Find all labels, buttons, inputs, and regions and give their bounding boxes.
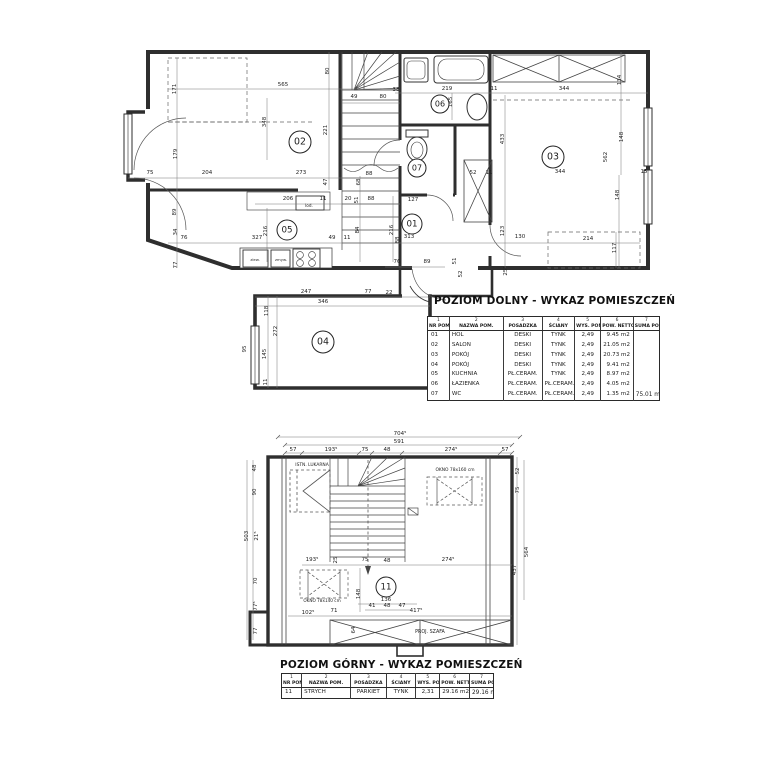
dim-label: 148 <box>615 189 621 200</box>
dim-label: 52 <box>458 271 464 278</box>
dim-label: OKNO 78x140 cm <box>303 598 340 603</box>
dim-label: 77 <box>253 627 259 634</box>
dim-label: 48 <box>384 558 391 564</box>
column-header: 4ŚCIANY <box>386 674 416 688</box>
table-cell: 2,49 <box>575 341 601 351</box>
upper-level-room-table: 1NR POM.2NAZWA POM.3POSADZKA4ŚCIANY5WYS.… <box>281 673 494 699</box>
column-header: 3POSADZKA <box>503 317 542 331</box>
room-number-label: 05 <box>281 226 292 236</box>
dim-label: 214 <box>583 236 594 242</box>
dim-label: OKNO 78x160 cm <box>435 467 474 473</box>
dim-label: 564 <box>524 546 530 557</box>
knee-walls <box>282 457 490 645</box>
table-cell: 06 <box>428 380 450 390</box>
dim-label: 219 <box>442 86 453 92</box>
column-header: 6POW. NETTO <box>601 317 634 331</box>
dim-label: 22 <box>386 290 393 296</box>
dim-label: 75 <box>147 170 154 176</box>
dim-label: 15 <box>641 169 648 175</box>
dim-label: 433 <box>500 133 506 144</box>
room-number-label: 06 <box>435 100 445 109</box>
dim-label: 134 <box>617 74 623 85</box>
table-cell: 11 <box>282 688 302 699</box>
dim-label: 48 <box>384 603 391 609</box>
table-cell: 2,49 <box>575 361 601 371</box>
table-cell: 04 <box>428 361 450 371</box>
dim-label: 273 <box>296 170 307 176</box>
dim-label: 47 <box>323 178 329 185</box>
dim-label: 11 <box>320 196 327 202</box>
table-cell: PŁ.CERAM. <box>503 380 542 390</box>
dim-label: 90 <box>252 488 258 495</box>
dim-label: 89 <box>172 208 178 215</box>
room-number-label: 02 <box>294 137 306 148</box>
dim-label: 145 <box>262 348 268 359</box>
dim-label: 118 <box>264 305 270 316</box>
dim-label: 89 <box>424 259 431 265</box>
staircase-lower <box>342 52 400 250</box>
dim-label: 247 <box>301 289 312 295</box>
dim-label: 25 <box>333 556 339 563</box>
dim-label: 130 <box>515 234 526 240</box>
dim-label: 327 <box>252 235 263 241</box>
table-cell: 9.45 m2 <box>601 331 634 341</box>
lower-plan-inner-walls <box>148 52 490 268</box>
dim-label: 47 <box>399 603 406 609</box>
dim-label: 193⁵ <box>306 556 319 563</box>
lower-plan-title: POZIOM DOLNY - WYKAZ POMIESZCZEŃ <box>434 295 675 307</box>
table-cell: DESKI <box>503 331 542 341</box>
dim-label: 71 <box>331 608 338 614</box>
dim-label: 591 <box>394 439 405 445</box>
column-header: 7SUMA POW. <box>469 674 493 688</box>
dim-label: 565 <box>278 82 289 88</box>
dim-label: 77 <box>173 261 179 268</box>
table-cell: 1.35 m2 <box>601 390 634 400</box>
dim-label: 344 <box>555 169 566 175</box>
dim-label: PROJ. SZAFA <box>415 629 445 635</box>
total-area-cell: 75.01 m2 <box>633 331 659 400</box>
column-header: 7SUMA POW. <box>633 317 659 331</box>
column-header: 5WYS. POM. <box>416 674 440 688</box>
table-cell: SALON <box>449 341 503 351</box>
table-cell: 21.05 m2 <box>601 341 634 351</box>
room-number-label: 07 <box>412 164 422 173</box>
dim-label: 193⁵ <box>325 446 338 453</box>
table-cell: KUCHNIA <box>449 370 503 380</box>
room-number-label: 01 <box>406 220 417 230</box>
upper-plan-title: POZIOM GÓRNY - WYKAZ POMIESZCZEŃ <box>280 659 494 671</box>
dim-label: 179 <box>173 148 179 159</box>
dim-label: 41 <box>369 603 376 609</box>
room-number-label: 04 <box>317 337 329 348</box>
room-schedule-table: 1NR POM.2NAZWA POM.3POSADZKA4ŚCIANY5WYS.… <box>427 316 660 401</box>
dim-label: 274⁵ <box>445 446 458 453</box>
dim-label: 70 <box>253 577 259 584</box>
dim-label: lod. <box>305 203 313 208</box>
dim-label: ISTN. LUKARNA <box>295 462 328 468</box>
dim-label: 57 <box>290 447 297 453</box>
table-cell: TYNK <box>386 688 416 699</box>
column-header: 5WYS. POM. <box>575 317 601 331</box>
dim-label: 148 <box>619 131 625 142</box>
staircase-upper <box>330 457 418 575</box>
column-header: 1NR POM. <box>282 674 302 688</box>
dim-label: 49 <box>351 94 358 100</box>
table-cell: 2,49 <box>575 380 601 390</box>
table-cell: 4.05 m2 <box>601 380 634 390</box>
dim-label: 344 <box>559 86 570 92</box>
dim-label: 562 <box>603 152 609 163</box>
dim-label: 48 <box>252 464 258 471</box>
table-cell: 2,49 <box>575 331 601 341</box>
dormer-outline <box>290 470 330 512</box>
column-header: 6POW. NETTO <box>440 674 470 688</box>
dim-label: 77 <box>365 289 372 295</box>
table-cell: DESKI <box>503 341 542 351</box>
table-row: 03POKÓJDESKITYNK2,4920.73 m2 <box>428 351 660 361</box>
dim-label: 88 <box>395 236 401 243</box>
table-cell: POKÓJ <box>449 351 503 361</box>
dim-label: 51 <box>354 197 360 204</box>
dim-label: 48 <box>384 447 391 453</box>
room-number-label: 11 <box>380 583 391 593</box>
table-cell: ŁAZIENKA <box>449 380 503 390</box>
table-cell: DESKI <box>503 361 542 371</box>
dim-label: 51 <box>452 258 458 265</box>
table-cell: 2,49 <box>575 370 601 380</box>
dim-label: 77⁵ <box>252 601 259 610</box>
scanned-floor-plan-page: 1715653488049802211793821911344134165433… <box>0 0 768 768</box>
dim-label: 503 <box>244 530 250 541</box>
dim-label: 123 <box>500 225 506 236</box>
table-cell: 05 <box>428 370 450 380</box>
table-row: 06ŁAZIENKAPŁ.CERAM.PŁ.CERAM.2,494.05 m2 <box>428 380 660 390</box>
room-schedule-table: 1NR POM.2NAZWA POM.3POSADZKA4ŚCIANY5WYS.… <box>281 673 494 699</box>
dim-label: 84 <box>355 226 361 233</box>
dim-label: zmyw. <box>275 257 287 262</box>
table-cell: PŁ.CERAM. <box>503 370 542 380</box>
table-cell: 02 <box>428 341 450 351</box>
dim-label: 221 <box>323 125 329 136</box>
dim-label: 21⁵ <box>253 531 260 540</box>
dim-label: 88 <box>366 171 373 177</box>
dim-label: 11 <box>344 235 351 241</box>
dim-label: 102⁵ <box>302 609 315 616</box>
column-header: 4ŚCIANY <box>542 317 575 331</box>
upper-plan-outer-walls <box>250 457 512 656</box>
washbasin-icon <box>467 94 487 120</box>
dim-label: 80 <box>325 67 331 74</box>
dim-label: 704⁵ <box>394 430 407 437</box>
table-row: 02SALONDESKITYNK2,4921.05 m2 <box>428 341 660 351</box>
table-cell: 2,49 <box>575 390 601 400</box>
table-cell: TYNK <box>542 351 575 361</box>
dim-label: 88 <box>368 196 375 202</box>
upper-plan: 704⁵59157193⁵7548274⁵57489050321⁵7077⁵77… <box>244 430 530 656</box>
upper-plan-dim-labels: 704⁵59157193⁵7548274⁵57489050321⁵7077⁵77… <box>244 430 530 635</box>
dim-label: 437 <box>512 564 518 575</box>
table-cell: PŁ.CERAM. <box>542 380 575 390</box>
table-cell: 01 <box>428 331 450 341</box>
dim-label: 272 <box>273 326 279 337</box>
dim-label: 20 <box>345 196 352 202</box>
table-cell: 9.41 m2 <box>601 361 634 371</box>
upper-dim-lines <box>247 435 524 645</box>
room-number-label: 03 <box>547 152 559 163</box>
stair-direction-arrow <box>365 566 371 575</box>
table-cell: 07 <box>428 390 450 400</box>
table-cell: PŁ.CERAM. <box>503 390 542 400</box>
dim-label: 57 <box>502 447 509 453</box>
dim-label: 76 <box>394 259 401 265</box>
table-cell: PŁ.CERAM. <box>542 390 575 400</box>
dim-label: 11 <box>486 170 493 176</box>
dim-label: 127 <box>408 197 419 203</box>
dim-label: 216 <box>389 224 395 235</box>
table-cell: 03 <box>428 351 450 361</box>
dim-label: 11 <box>263 379 269 386</box>
dim-label: zlew. <box>250 257 259 262</box>
dim-label: 75 <box>362 557 369 563</box>
dim-label: 80 <box>380 94 387 100</box>
dim-label: 64 <box>351 626 357 633</box>
dim-label: 117 <box>612 242 618 253</box>
lower-level-room-table: 1NR POM.2NAZWA POM.3POSADZKA4ŚCIANY5WYS.… <box>427 316 660 401</box>
table-row: 07WCPŁ.CERAM.PŁ.CERAM.2,491.35 m2 <box>428 390 660 400</box>
dim-label: 95 <box>242 345 248 352</box>
dim-label: 348 <box>262 116 268 127</box>
dim-label: 11 <box>491 86 498 92</box>
table-cell: WC <box>449 390 503 400</box>
dim-label: 148 <box>356 588 362 599</box>
toilet-tank-icon <box>406 130 428 137</box>
column-header: 2NAZWA POM. <box>302 674 351 688</box>
dim-label: 75 <box>515 486 521 493</box>
table-cell: 2,31 <box>416 688 440 699</box>
dim-label: 75 <box>362 447 369 453</box>
dim-label: 49 <box>329 235 336 241</box>
column-header: 2NAZWA POM. <box>449 317 503 331</box>
dim-label: 313 <box>404 234 415 240</box>
dim-label: 38 <box>393 87 400 93</box>
table-cell: 29.16 m2 <box>440 688 470 699</box>
table-cell: HOL <box>449 331 503 341</box>
table-cell: TYNK <box>542 331 575 341</box>
dim-label: 274⁵ <box>442 556 455 563</box>
table-row: 01HOLDESKITYNK2,499.45 m275.01 m2 <box>428 331 660 341</box>
table-cell: TYNK <box>542 370 575 380</box>
table-row: 11STRYCHPARKIETTYNK2,3129.16 m229.16 m2 <box>282 688 494 699</box>
dim-label: 206 <box>283 196 294 202</box>
table-cell: TYNK <box>542 361 575 371</box>
dim-label: 346 <box>318 299 329 305</box>
table-cell: STRYCH <box>302 688 351 699</box>
table-row: 05KUCHNIAPŁ.CERAM.TYNK2,498.97 m2 <box>428 370 660 380</box>
dim-label: 204 <box>202 170 213 176</box>
dim-label: 171 <box>172 84 178 95</box>
dim-label: 25⁵ <box>502 266 509 275</box>
table-cell: 2,49 <box>575 351 601 361</box>
dim-label: 216 <box>263 225 269 236</box>
dim-label: 34 <box>173 228 179 235</box>
dim-label: 52 <box>515 468 521 475</box>
table-cell: TYNK <box>542 341 575 351</box>
column-header: 3POSADZKA <box>351 674 387 688</box>
table-cell: 20.73 m2 <box>601 351 634 361</box>
total-area-cell: 29.16 m2 <box>469 688 493 699</box>
table-cell: 8.97 m2 <box>601 370 634 380</box>
table-row: 04POKÓJDESKITYNK2,499.41 m2 <box>428 361 660 371</box>
upper-plan-room-markers: 11 <box>376 577 396 597</box>
table-cell: POKÓJ <box>449 361 503 371</box>
table-cell: PARKIET <box>351 688 387 699</box>
dim-label: 417⁵ <box>410 607 423 614</box>
table-cell: DESKI <box>503 351 542 361</box>
column-header: 1NR POM. <box>428 317 450 331</box>
dim-label: 52 <box>470 170 477 176</box>
dim-label: 68 <box>356 178 362 185</box>
dim-label: 76 <box>181 235 188 241</box>
